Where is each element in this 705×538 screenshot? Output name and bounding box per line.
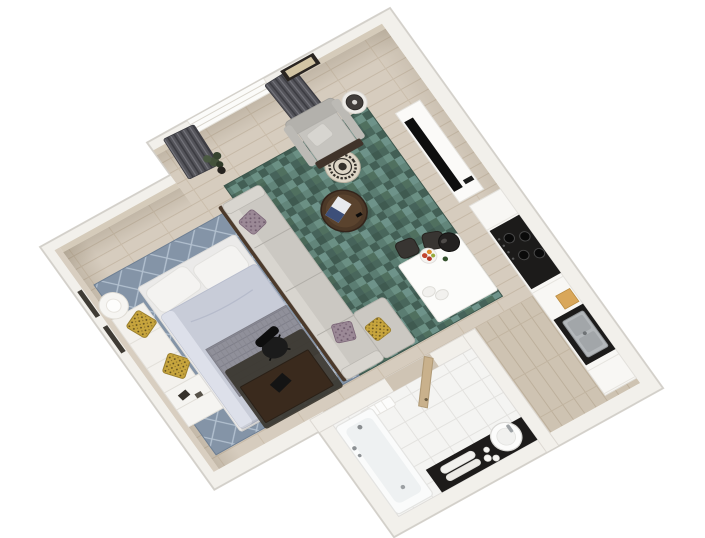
- apartment: [17, 8, 663, 538]
- floor-plan-svg: [0, 0, 705, 538]
- floor-plan-render: [0, 0, 705, 538]
